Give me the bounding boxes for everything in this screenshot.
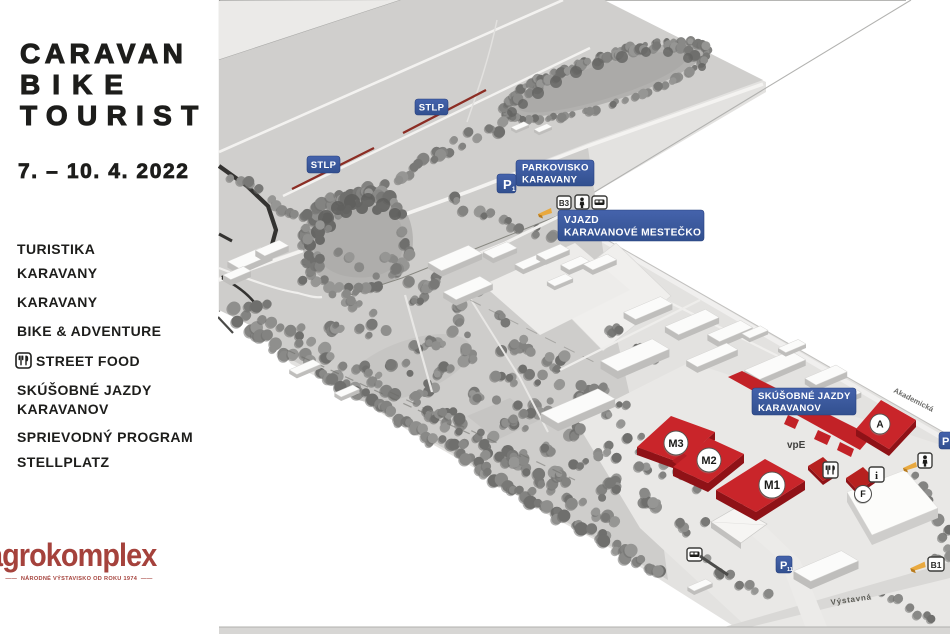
svg-text:VJAZD: VJAZD (564, 215, 599, 226)
svg-text:M2: M2 (701, 455, 716, 467)
svg-text:F: F (860, 489, 866, 499)
svg-text:KARAVANOVÉ MESTEČKO: KARAVANOVÉ MESTEČKO (564, 225, 701, 238)
svg-text:M1: M1 (764, 480, 781, 492)
svg-text:STLP: STLP (311, 160, 337, 171)
svg-text:i: i (875, 470, 878, 482)
svg-text:vpE: vpE (787, 440, 806, 451)
svg-text:SKÚŠOBNÉ JAZDY: SKÚŠOBNÉ JAZDY (758, 390, 851, 402)
svg-text:PARKOVISKO: PARKOVISKO (522, 163, 589, 174)
svg-text:P: P (503, 177, 512, 192)
svg-text:B3: B3 (559, 199, 570, 208)
svg-text:KARAVANY: KARAVANY (522, 174, 578, 185)
svg-text:11: 11 (787, 567, 793, 573)
svg-text:B1: B1 (931, 560, 942, 570)
svg-text:A: A (876, 420, 883, 431)
svg-text:KARAVANOV: KARAVANOV (758, 403, 821, 414)
svg-text:M3: M3 (668, 438, 683, 450)
svg-text:P: P (942, 436, 949, 448)
svg-text:STLP: STLP (419, 102, 445, 113)
